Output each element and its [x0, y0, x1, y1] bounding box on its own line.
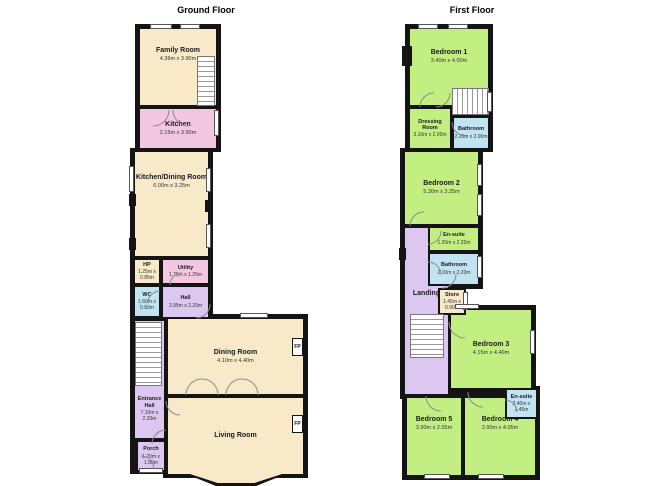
room-label: Family Room [156, 47, 200, 55]
room-bathroom-mid: Bathroom 2.10m x 2.20m [428, 252, 480, 286]
window [129, 166, 134, 192]
window [455, 304, 479, 309]
room-label: Bedroom 3 [473, 341, 510, 349]
window [477, 194, 482, 216]
room-dims: 1.20m x 2.20m [437, 240, 470, 246]
room-label: HP [143, 262, 151, 268]
room-dims: 6.00m x 3.25m [153, 183, 189, 190]
ground-floor-title: Ground Floor [160, 5, 252, 15]
room-label: Bedroom 2 [423, 180, 460, 188]
stairs-first-top [452, 88, 489, 115]
window [418, 24, 438, 29]
wall-pier [399, 248, 406, 260]
room-dims: 3.10m x 2.00m [413, 132, 446, 138]
room-hall: Hall 2.95m x 2.20m [161, 285, 210, 319]
room-label: Bedroom 1 [431, 49, 468, 57]
room-label: Kitchen [165, 121, 191, 129]
window [530, 330, 535, 354]
room-label: Bedroom 5 [416, 416, 453, 424]
room-dims: 2.15m x 3.90m [160, 130, 196, 137]
window [206, 224, 211, 248]
room-label: Entrance Hall [135, 396, 164, 409]
room-dims: 1.20m x 1.80m [138, 454, 164, 466]
room-dims: 3.90m x 4.05m [482, 425, 518, 432]
room-label: Bathroom [458, 126, 484, 132]
window [477, 164, 482, 186]
stairs-ground-top [197, 56, 215, 106]
room-dims: 4.15m x 4.40m [473, 350, 509, 357]
room-label: En-suite [511, 394, 533, 400]
room-label: Dining Room [214, 349, 258, 357]
fireplace-living: FP [292, 415, 303, 433]
room-dims: 5.30m x 3.25m [423, 189, 459, 196]
room-dining-room: Dining Room 4.10m x 4.40m [166, 317, 305, 396]
room-dims: 1.60m x 0.80m [135, 299, 159, 311]
room-label: Dressing Room [410, 119, 450, 132]
room-label: WC [142, 292, 151, 298]
room-label: Bathroom [441, 262, 467, 268]
room-bedroom-3: Bedroom 3 4.15m x 4.40m [449, 308, 533, 390]
room-bathroom-top: Bathroom 2.20m x 2.00m [452, 116, 490, 150]
window [214, 110, 219, 136]
fireplace-dining: FP [292, 338, 303, 356]
window [424, 474, 450, 479]
room-dims: 1.25m x 0.85m [135, 269, 159, 281]
room-dressing-room: Dressing Room 3.10m x 2.00m [408, 107, 452, 150]
room-wc: WC 1.60m x 0.80m [133, 285, 161, 318]
chimney-breast [402, 46, 412, 66]
window [240, 313, 268, 318]
window [139, 468, 163, 473]
room-label: Porch [143, 446, 159, 452]
room-dims: 2.95m x 2.20m [169, 303, 202, 309]
room-dims: 2.10m x 2.20m [437, 270, 470, 276]
stairs-entrance-hall [135, 322, 162, 386]
room-kitchen-dining: Kitchen/Dining Room 6.00m x 3.25m [133, 150, 210, 258]
room-dims: 4.10m x 4.40m [217, 358, 253, 365]
wall-pier [129, 238, 136, 250]
room-dims: 3.90m x 2.55m [416, 425, 452, 432]
window [206, 168, 211, 192]
room-bedroom-5: Bedroom 5 3.90m x 2.55m [405, 396, 463, 477]
room-label: En-suite [443, 232, 465, 238]
room-ensuite-mid: En-suite 1.20m x 2.20m [428, 226, 480, 252]
window [150, 24, 172, 29]
room-dims: 1.75m x 1.25m [169, 272, 202, 278]
window [448, 24, 468, 29]
room-label: Utility [178, 265, 193, 271]
wall-pier [129, 194, 136, 206]
room-store: Store 1.45m x 0.90m [438, 288, 466, 315]
room-label: Kitchen/Dining Room [136, 174, 207, 182]
room-dims: 2.20m x 2.00m [454, 134, 487, 140]
room-label: Living Room [214, 432, 256, 440]
window [477, 256, 482, 278]
room-utility: Utility 1.75m x 1.25m [161, 258, 210, 285]
door-arcs [0, 0, 668, 486]
room-living-room: Living Room [166, 396, 305, 476]
room-hp: HP 1.25m x 0.85m [133, 258, 161, 285]
window [478, 474, 504, 479]
room-label: Store [445, 292, 459, 298]
room-dims: 2.40m x 1.45m [507, 401, 536, 413]
room-ensuite-bottom: En-suite 2.40m x 1.45m [505, 388, 538, 419]
room-bedroom-2: Bedroom 2 5.30m x 3.25m [403, 150, 480, 226]
room-label: Hall [180, 295, 190, 301]
room-dims: 3.40m x 4.00m [431, 58, 467, 65]
room-dims: 7.10m x 2.20m [135, 410, 164, 422]
wall-pier [205, 200, 212, 212]
room-kitchen: Kitchen 2.15m x 3.90m [138, 107, 218, 150]
room-dims: 4.36m x 3.90m [160, 56, 196, 63]
window [180, 24, 200, 29]
window [487, 92, 492, 112]
stairs-landing [410, 314, 444, 358]
floorplan-canvas: Ground Floor First Floor Family Room 4.3… [0, 0, 668, 486]
first-floor-title: First Floor [428, 5, 516, 15]
